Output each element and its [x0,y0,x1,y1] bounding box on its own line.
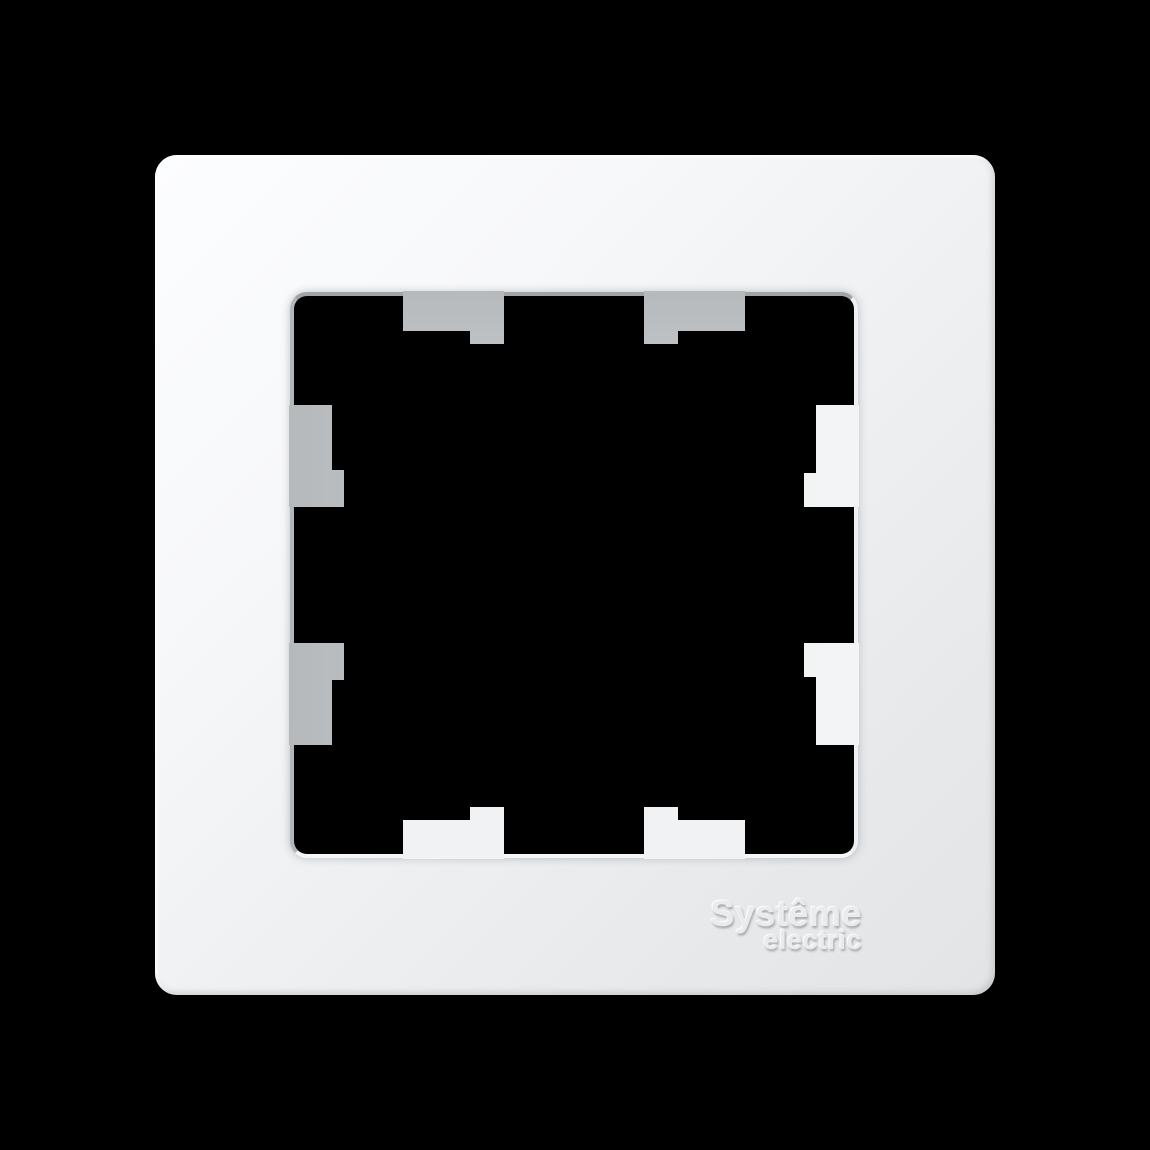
wall-frame: Systême electric [155,155,995,995]
photo-background: Systême electric [0,0,1150,1150]
frame-opening [290,292,858,858]
brand-logo: Systême electric [710,899,862,951]
